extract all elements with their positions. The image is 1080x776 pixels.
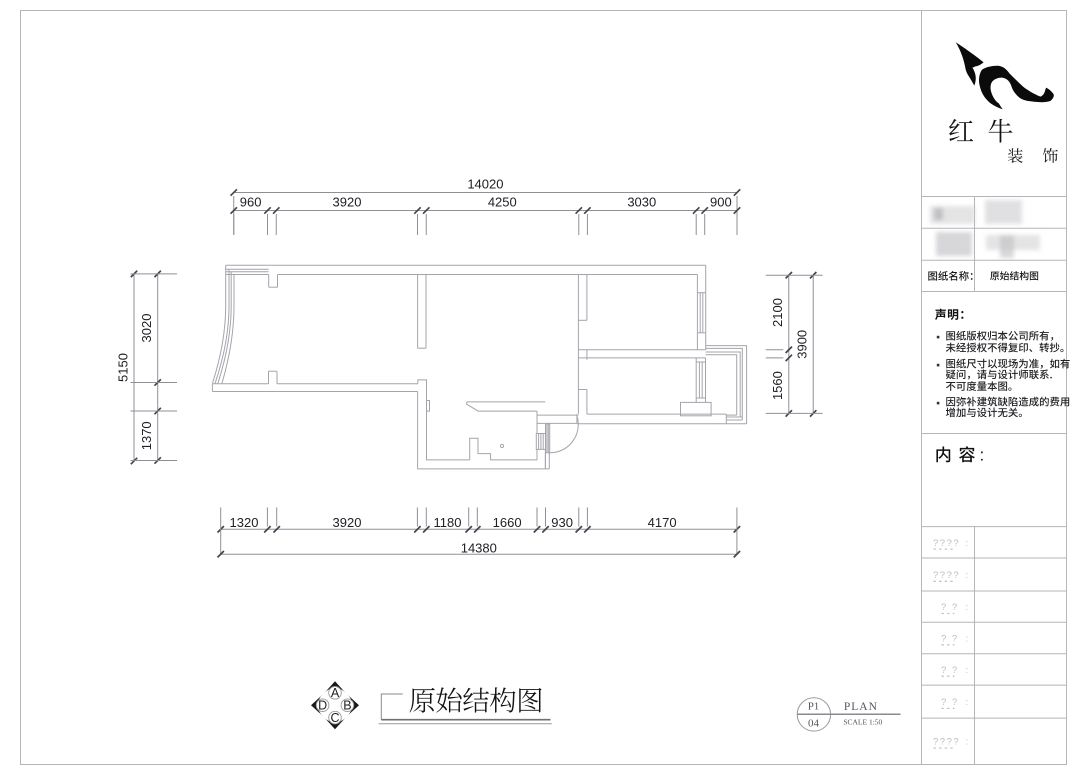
svg-text::: :: [966, 538, 969, 549]
svg-text:PLAN: PLAN: [844, 701, 878, 713]
svg-text:3020: 3020: [139, 314, 154, 343]
svg-text::: :: [966, 737, 969, 748]
svg-text:????: ????: [933, 570, 960, 581]
svg-text:1180: 1180: [434, 515, 462, 530]
svg-text:960: 960: [240, 195, 262, 210]
svg-text::: :: [980, 445, 985, 464]
svg-text:P1: P1: [808, 701, 820, 713]
svg-text:SCALE 1:50: SCALE 1:50: [843, 718, 882, 727]
svg-text:1320: 1320: [230, 515, 259, 530]
svg-text:04: 04: [808, 718, 820, 730]
svg-text:? ?: ? ?: [941, 697, 959, 708]
svg-text:1560: 1560: [770, 371, 785, 400]
svg-text::: :: [966, 665, 969, 676]
svg-text:900: 900: [710, 195, 732, 210]
svg-text:????: ????: [933, 538, 960, 549]
svg-text:4250: 4250: [488, 195, 517, 210]
svg-text:? ?: ? ?: [941, 634, 959, 645]
svg-text:? ?: ? ?: [941, 602, 959, 613]
svg-text:C: C: [330, 711, 339, 725]
svg-text:1370: 1370: [139, 421, 154, 450]
svg-text:2100: 2100: [770, 298, 785, 327]
svg-text::: :: [966, 697, 969, 708]
svg-text:1660: 1660: [493, 515, 522, 530]
svg-text::: :: [966, 602, 969, 613]
svg-text::: :: [966, 570, 969, 581]
svg-text:3030: 3030: [627, 195, 656, 210]
svg-text::: :: [966, 634, 969, 645]
svg-text:3920: 3920: [333, 515, 362, 530]
svg-text:5150: 5150: [116, 353, 131, 382]
svg-text:????: ????: [933, 737, 960, 748]
svg-text:D: D: [318, 699, 327, 713]
svg-text:? ?: ? ?: [941, 665, 959, 676]
svg-text:4170: 4170: [648, 515, 677, 530]
svg-text:14020: 14020: [467, 177, 503, 192]
svg-text:3920: 3920: [333, 195, 362, 210]
svg-text:B: B: [343, 699, 351, 713]
svg-text:A: A: [331, 686, 340, 700]
svg-text:3900: 3900: [795, 330, 810, 359]
svg-text:14380: 14380: [461, 541, 497, 556]
svg-text:930: 930: [551, 515, 573, 530]
